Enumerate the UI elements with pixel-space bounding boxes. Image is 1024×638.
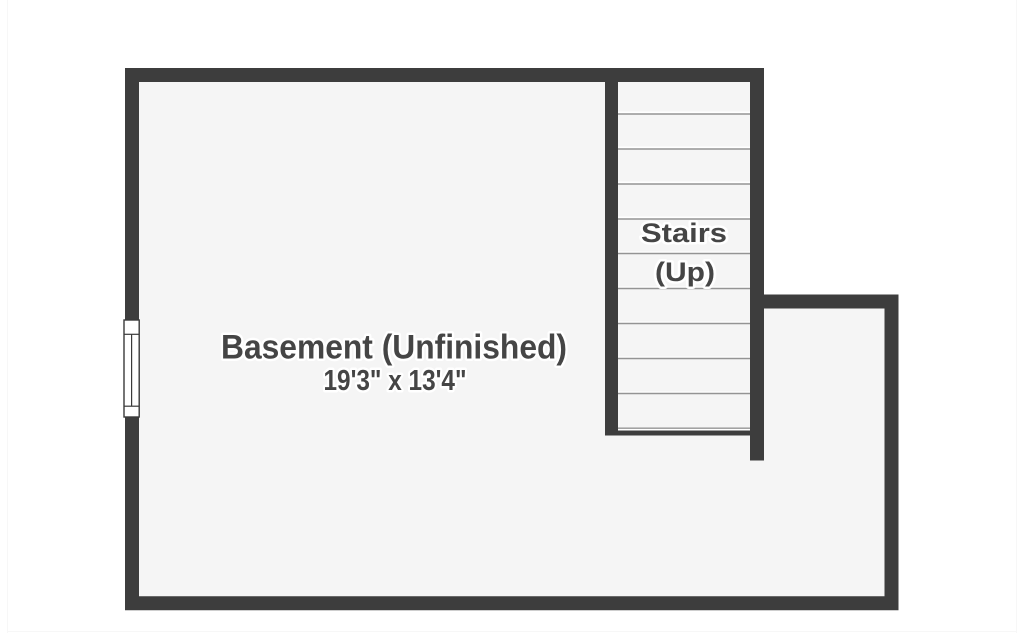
svg-text:19'3" x 13'4": 19'3" x 13'4" — [324, 365, 467, 397]
svg-text:Basement (Unfinished): Basement (Unfinished) — [221, 329, 567, 367]
svg-text:(Up): (Up) — [655, 257, 715, 287]
svg-text:Stairs: Stairs — [641, 218, 727, 248]
